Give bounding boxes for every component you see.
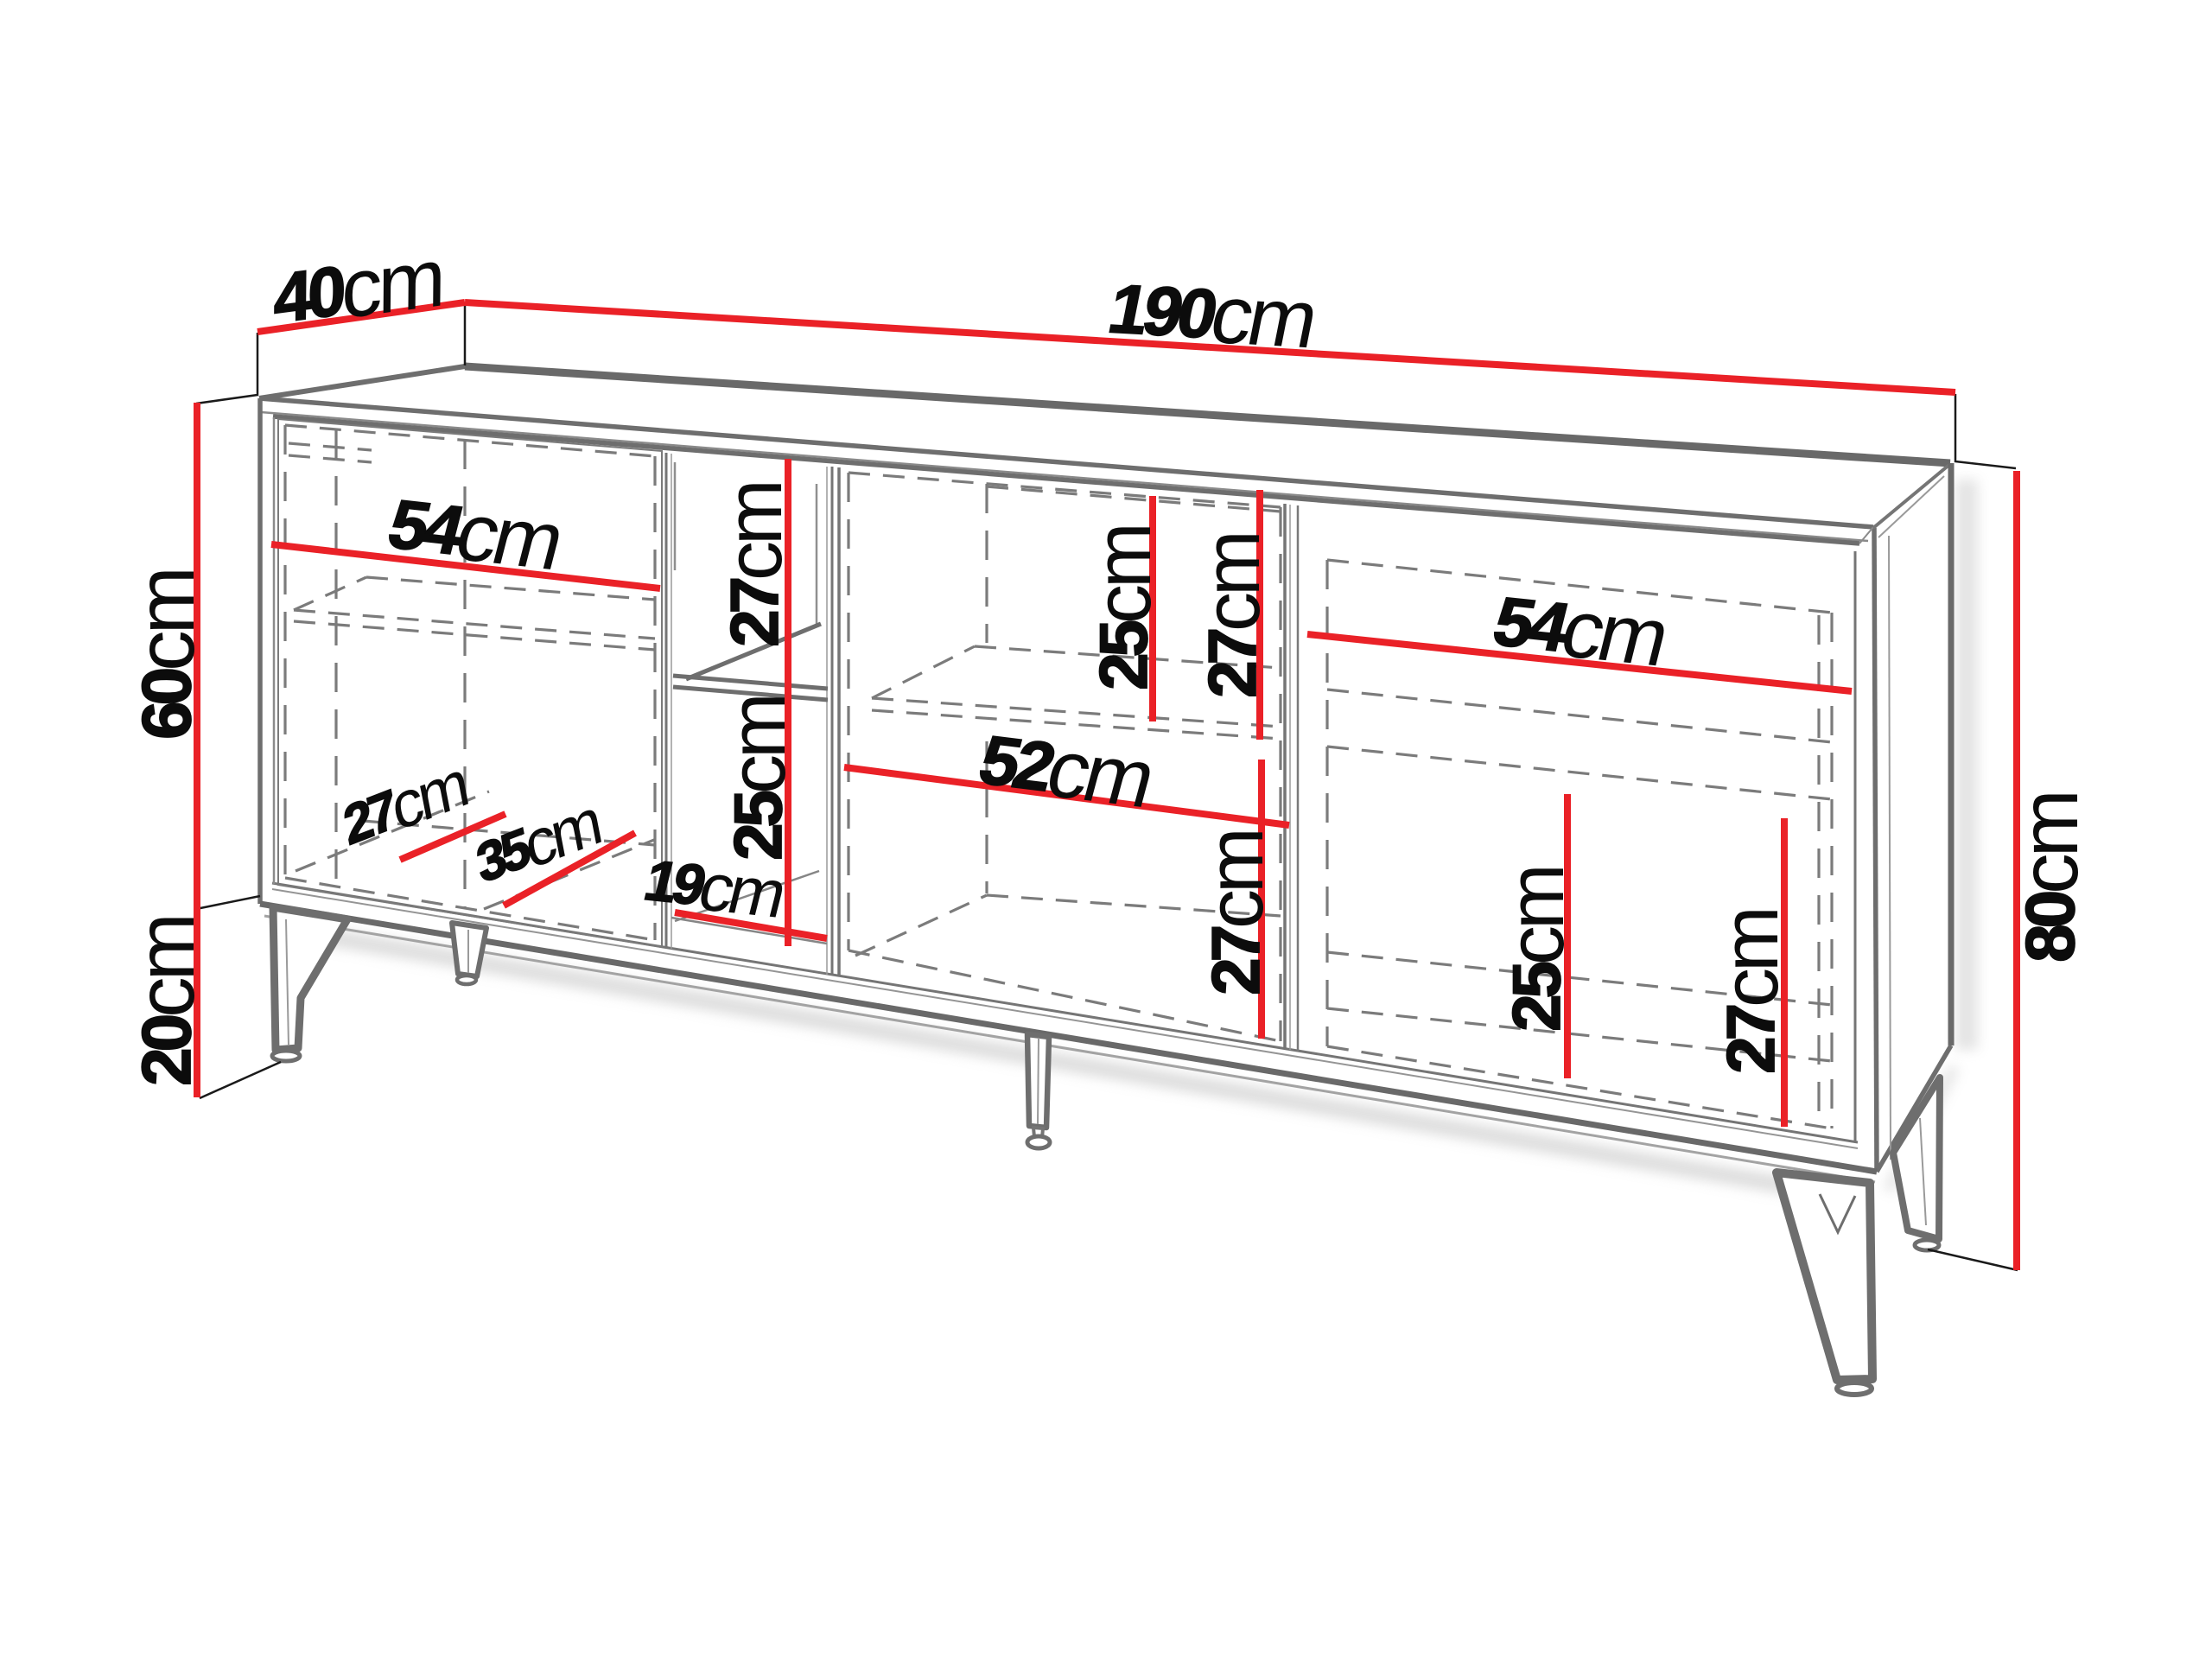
- svg-text:25cm: 25cm: [1492, 868, 1580, 1031]
- svg-text:27cm: 27cm: [1188, 534, 1276, 697]
- svg-text:25cm: 25cm: [1079, 526, 1167, 690]
- svg-text:80cm: 80cm: [2004, 793, 2095, 963]
- svg-text:27cm: 27cm: [1192, 831, 1280, 995]
- svg-text:60cm: 60cm: [120, 570, 212, 740]
- svg-text:20cm: 20cm: [120, 917, 212, 1086]
- svg-text:25cm: 25cm: [714, 696, 802, 860]
- svg-text:27cm: 27cm: [710, 483, 798, 646]
- svg-text:27cm: 27cm: [1707, 910, 1795, 1073]
